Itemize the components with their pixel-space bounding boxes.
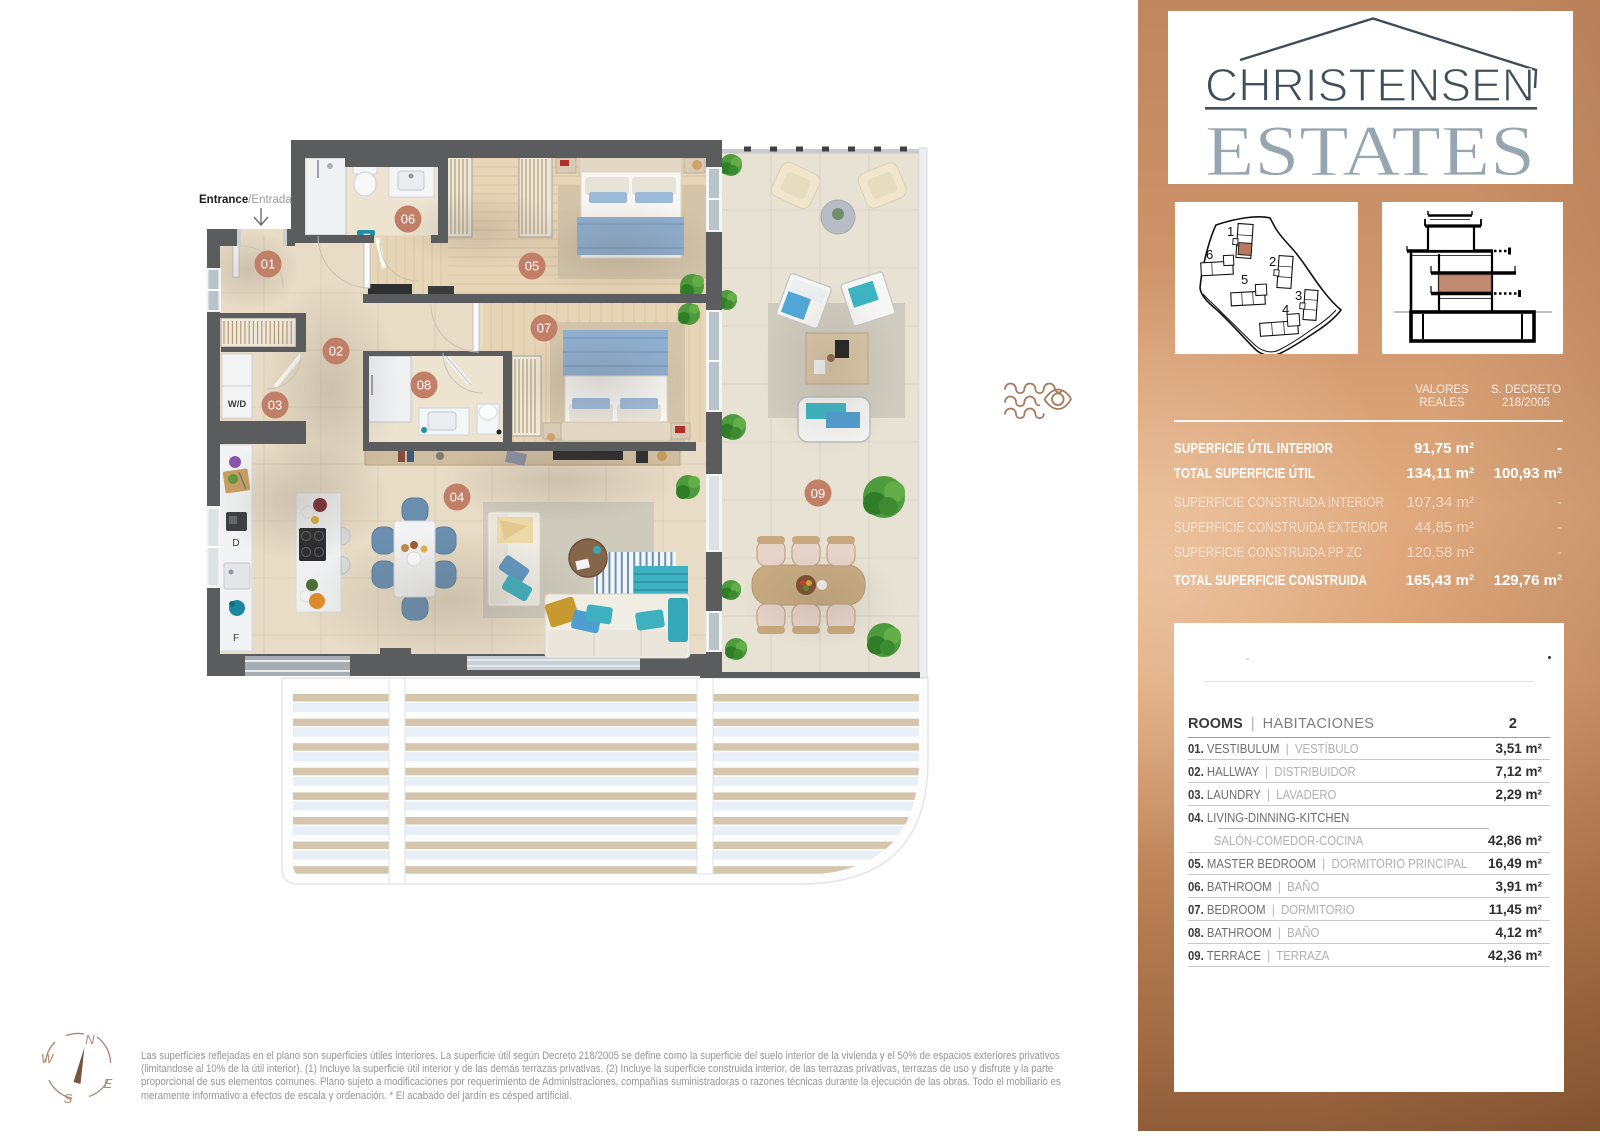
svg-text:F: F [233, 633, 239, 644]
svg-text:S: S [64, 1091, 73, 1106]
svg-text:N: N [85, 1032, 95, 1047]
svg-text:08: 08 [417, 378, 431, 393]
svg-text:W: W [41, 1051, 55, 1066]
svg-text:W/D: W/D [228, 399, 247, 410]
svg-text:02: 02 [329, 344, 343, 359]
svg-text:05: 05 [525, 259, 539, 274]
svg-text:04: 04 [450, 490, 464, 505]
svg-text:06: 06 [401, 212, 415, 227]
svg-text:01: 01 [261, 257, 275, 272]
svg-text:07: 07 [537, 321, 551, 336]
svg-text:03: 03 [268, 398, 282, 413]
svg-text:Entrance/Entrada: Entrance/Entrada [199, 194, 292, 206]
svg-text:E: E [104, 1076, 113, 1091]
svg-text:09: 09 [811, 486, 825, 501]
